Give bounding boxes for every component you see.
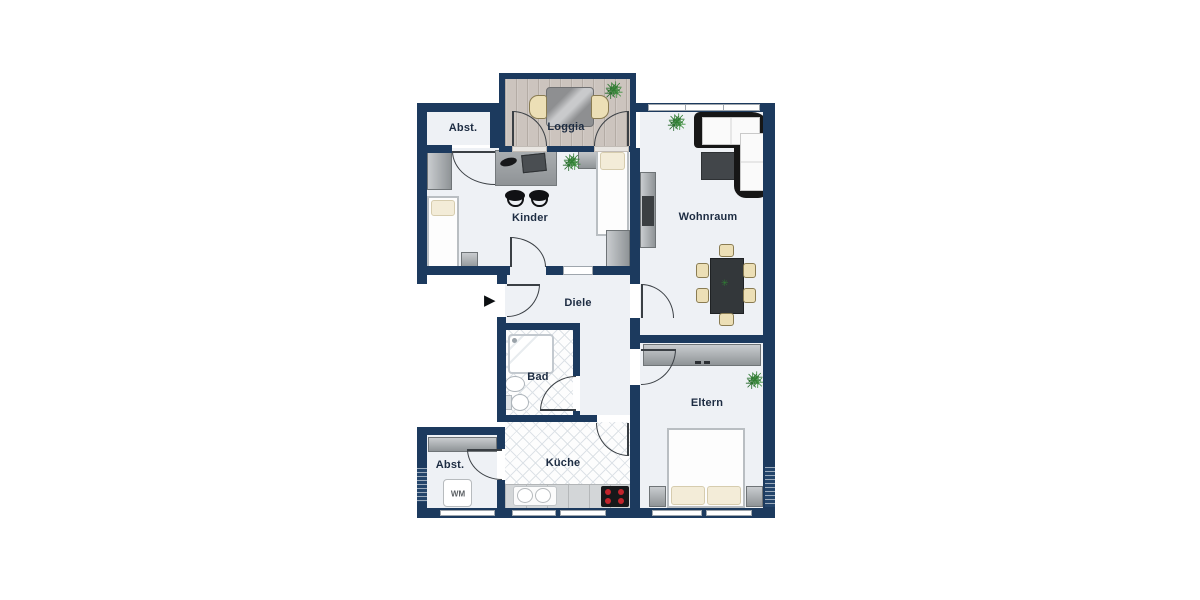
plant-icon: ✳ [607,84,620,100]
floor-corridor [580,323,630,415]
room-label-abst-top: Abst. [449,122,478,134]
room-label-eltern: Eltern [691,397,723,409]
floorplan-canvas: ✳ ✳ ✳ ✳ ✳ WM [0,0,1200,600]
room-label-bad: Bad [527,371,548,383]
wall [546,266,563,275]
kinder-wardrobe-2 [606,230,630,268]
dining-chair [743,288,756,303]
wardrobe-handle [704,361,710,364]
wall [490,110,499,148]
window [560,510,606,516]
bed-pillow [600,152,625,170]
wall [630,335,763,343]
desk-laptop [521,153,547,173]
room-label-diele: Diele [564,297,591,309]
washbasin [505,376,525,392]
eltern-nightstand [746,486,763,507]
wall [573,330,580,376]
wall [763,103,775,518]
door-threshold [594,146,629,152]
window [706,510,752,516]
wall [417,103,499,112]
room-label-wohnraum: Wohnraum [679,211,738,223]
wall [497,266,507,284]
watermark-left [417,468,427,502]
wall [497,480,505,508]
wall [630,385,640,508]
room-label-kueche: Küche [546,457,581,469]
kinder-cabinet [578,149,597,169]
eltern-nightstand [649,486,666,507]
desk-chair [505,190,525,201]
wall [630,148,640,284]
stove-burner [618,498,624,504]
wall [499,73,505,149]
wall [417,427,505,435]
plant-icon: ✳ [670,116,683,132]
stove-burner [618,489,624,495]
sink-basin [517,488,533,503]
dining-chair [719,244,734,257]
plant-icon: ✳ [748,374,761,390]
shower-head [512,338,517,343]
kinder-wardrobe [427,150,452,190]
dining-chair [719,313,734,326]
wall [547,146,594,152]
dining-chair [696,263,709,278]
window-interior [563,266,593,275]
desk-chair [529,190,549,201]
wall [497,415,597,422]
toilet [511,394,529,411]
room-label-loggia: Loggia [547,121,584,133]
wardrobe-handle [695,361,701,364]
bed-pillow [707,486,741,505]
plant-icon: ✳ [565,156,578,172]
room-label-kinder: Kinder [512,212,548,224]
window [648,104,760,111]
wall [427,145,452,153]
wall [497,323,580,330]
wall [499,73,636,79]
bed-pillow [671,486,705,505]
sink-basin [535,488,551,503]
window [440,510,495,516]
dining-chair [696,288,709,303]
door-threshold [512,146,547,152]
window [652,510,702,516]
wall [497,317,506,420]
watermark-right [765,467,775,507]
wall [629,146,636,152]
wall [630,343,640,349]
sideboard-panel [642,196,654,226]
wall [497,435,505,449]
stove-burner [605,498,611,504]
stove-burner [605,489,611,495]
entry-arrow-icon: ▶ [484,293,496,308]
wall [417,103,427,284]
loggia-chair [529,95,547,119]
window [512,510,556,516]
bed-pillow [431,200,455,216]
dining-chair [743,263,756,278]
washing-machine-label: WM [451,490,465,499]
table-plant-icon: ✳ [721,279,729,288]
room-label-abst-bottom: Abst. [436,459,465,471]
wall [499,146,512,152]
